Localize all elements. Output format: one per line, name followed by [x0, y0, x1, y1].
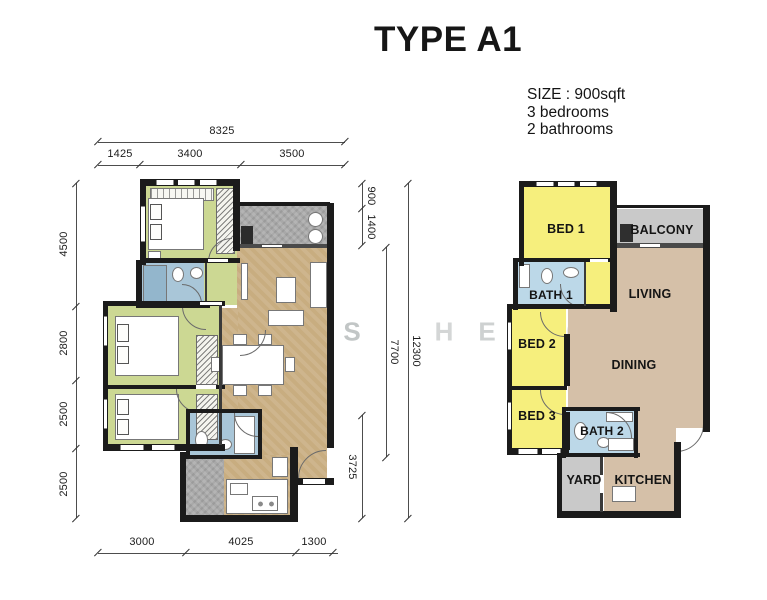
entry-opening: [303, 479, 325, 484]
window: [200, 180, 217, 185]
stove-icon: [252, 496, 278, 511]
shower-icon: [519, 264, 530, 288]
page-title: TYPE A1: [374, 20, 522, 60]
window: [580, 182, 597, 186]
shower-icon: [143, 265, 167, 304]
dim-label: 12300: [410, 335, 422, 367]
dimension-line: [386, 247, 387, 457]
room-label-bath2: BATH 2: [580, 424, 624, 438]
wall: [562, 407, 566, 458]
pillow-icon: [150, 204, 162, 220]
wall: [519, 181, 524, 266]
pillow-icon: [117, 324, 129, 342]
wall: [674, 442, 681, 518]
window: [178, 180, 195, 185]
wall: [610, 181, 617, 312]
living-floor: [617, 248, 703, 428]
plant-icon: [308, 212, 323, 227]
hall2-floor: [638, 428, 676, 458]
hall-floor: [584, 262, 612, 308]
room-label-balcony: BALCONY: [630, 223, 693, 237]
watermark-letter: H: [435, 317, 454, 348]
wall: [186, 455, 262, 459]
room-label-yard: YARD: [566, 473, 601, 487]
wall: [180, 452, 186, 522]
dim-tick: [341, 138, 349, 146]
sliding-door: [240, 244, 327, 248]
dim-tick: [358, 515, 366, 523]
window: [141, 206, 145, 242]
wall: [557, 511, 681, 518]
wall: [562, 407, 640, 411]
wall: [233, 179, 240, 251]
dim-tick: [72, 515, 80, 523]
wall: [557, 453, 562, 518]
door-arc: [240, 330, 266, 356]
floor-plan-page: TYPE A1 SIZE : 900sqft 3 bedrooms 2 bath…: [0, 0, 767, 600]
dim-tick: [382, 454, 390, 462]
room-label-dining: DINING: [612, 358, 657, 372]
wall: [584, 262, 586, 306]
wall: [205, 263, 207, 305]
sliding-door: [617, 243, 703, 248]
basin-icon: [563, 267, 579, 278]
dim-label: 3500: [279, 148, 304, 160]
window: [536, 182, 554, 186]
dim-label: 3400: [177, 148, 202, 160]
pillow-icon: [117, 346, 129, 364]
wall: [240, 202, 330, 206]
door-arc: [540, 312, 565, 337]
window: [558, 182, 575, 186]
wall: [507, 386, 567, 390]
coffee-table-icon: [276, 277, 296, 303]
toilet-icon: [541, 268, 553, 284]
entry-door-arc: [298, 450, 326, 478]
dimension-line: [98, 165, 345, 166]
room-label-bath1: BATH 1: [529, 288, 573, 302]
door-opening: [590, 259, 608, 262]
sliding-door-gap: [262, 245, 282, 247]
window: [120, 445, 144, 450]
pillow-icon: [117, 419, 129, 435]
chair-icon: [258, 385, 272, 396]
tv-console-icon: [241, 263, 248, 300]
pillow-icon: [150, 224, 162, 240]
dim-label: 2500: [58, 401, 70, 426]
room-label-bed3: BED 3: [518, 409, 556, 423]
bathrooms-text: 2 bathrooms: [527, 121, 613, 139]
window: [518, 449, 538, 454]
wall: [513, 258, 518, 310]
vanity-icon: [608, 438, 634, 451]
dimension-line: [362, 183, 363, 245]
watermark-letter: S: [343, 317, 360, 348]
basin-icon: [190, 267, 203, 279]
sliding-door-gap: [640, 244, 660, 247]
wall: [634, 407, 638, 458]
room-label-living: LIVING: [629, 287, 672, 301]
room-label-kitchen: KITCHEN: [615, 473, 672, 487]
dimension-line: [76, 183, 77, 518]
chair-icon: [285, 357, 295, 372]
size-text: SIZE : 900sqft: [527, 86, 625, 104]
fridge-icon: [272, 457, 288, 477]
dim-label: 1400: [365, 214, 377, 239]
sofa-icon: [310, 262, 327, 308]
sofa-icon: [268, 310, 304, 326]
dim-label: 8325: [209, 125, 234, 137]
pillow-icon: [117, 399, 129, 415]
window: [104, 399, 107, 429]
bedrooms-text: 3 bedrooms: [527, 104, 609, 122]
window: [508, 402, 511, 430]
dim-label: 4500: [58, 231, 70, 256]
dimension-line: [98, 553, 338, 554]
yard-floor: [186, 456, 224, 516]
dim-tick: [358, 242, 366, 250]
watermark-letter: E: [478, 317, 495, 348]
room-label-bed1: BED 1: [547, 222, 585, 236]
wall: [615, 205, 710, 208]
wall: [219, 305, 222, 445]
door-arc: [234, 413, 258, 437]
dim-label: 3000: [129, 536, 154, 548]
dim-label: 2500: [58, 471, 70, 496]
toilet-icon: [172, 267, 184, 282]
window: [508, 322, 511, 350]
door-arc: [182, 306, 206, 330]
wall: [180, 515, 298, 522]
window: [104, 316, 107, 346]
door-opening: [196, 385, 216, 389]
dim-label: 1300: [301, 536, 326, 548]
wall: [508, 304, 617, 309]
dim-label: 7700: [388, 339, 400, 364]
wall: [327, 203, 334, 448]
ac-unit-icon: [241, 226, 253, 244]
dim-tick: [404, 515, 412, 523]
wall: [564, 334, 570, 386]
wall: [258, 409, 262, 459]
door-opening: [208, 259, 228, 262]
wall: [186, 409, 190, 459]
dimension-line: [362, 415, 363, 518]
wall: [186, 409, 262, 413]
wall: [703, 205, 710, 432]
plant-icon: [308, 229, 323, 244]
window: [156, 180, 174, 185]
dim-label: 3725: [346, 454, 358, 479]
dim-label: 4025: [228, 536, 253, 548]
dim-tick: [341, 161, 349, 169]
dim-label: 900: [365, 187, 377, 206]
dim-label: 2800: [58, 330, 70, 355]
dimension-line: [408, 183, 409, 518]
room-label-bed2: BED 2: [518, 337, 556, 351]
sink-icon: [230, 483, 248, 495]
dimension-line: [98, 142, 345, 143]
window: [152, 445, 175, 450]
dim-label: 1425: [107, 148, 132, 160]
chair-icon: [233, 385, 247, 396]
sink-icon: [612, 486, 636, 502]
